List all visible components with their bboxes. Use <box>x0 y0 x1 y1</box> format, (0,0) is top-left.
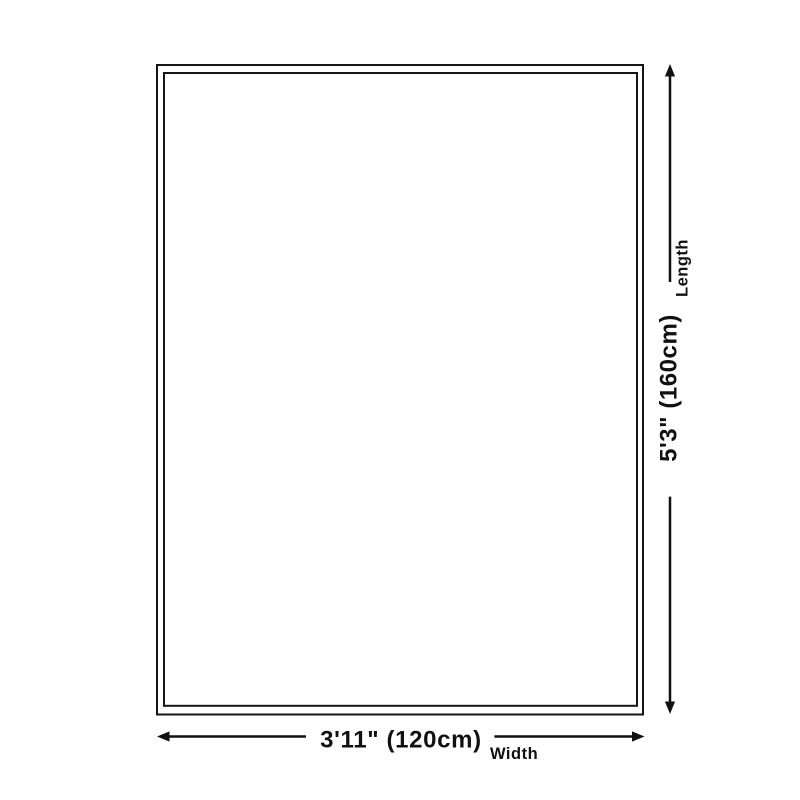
svg-text:5'3" (160cm): 5'3" (160cm) <box>656 314 683 462</box>
svg-text:Length: Length <box>674 239 692 297</box>
svg-text:3'11" (120cm): 3'11" (120cm) <box>320 727 482 754</box>
svg-text:Width: Width <box>490 745 538 763</box>
